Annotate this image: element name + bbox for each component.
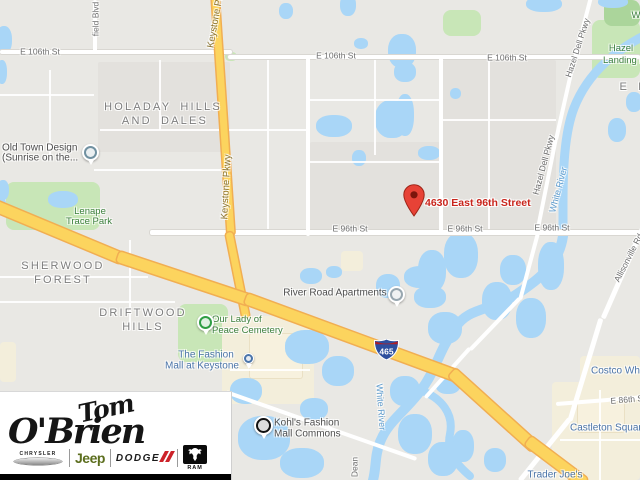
poi-our-lady-line2-label[interactable]: Peace Cemetery xyxy=(212,326,283,336)
minor-road xyxy=(267,57,269,231)
destination-marker-icon[interactable] xyxy=(403,184,425,222)
park-hazel-landing-line1-label: Hazel xyxy=(609,44,633,54)
street-e106-left-label: E 106th St xyxy=(20,47,60,56)
nbhd-el-fragment-label: E L xyxy=(619,81,640,93)
shop-costco-label[interactable]: Costco Wholesale xyxy=(591,366,640,377)
minor-road xyxy=(374,57,376,155)
nbhd-driftwood-line1-label: DRIFTWOOD xyxy=(99,307,187,319)
dealer-logo: Tom O'Brien CHRYSLER Jeep DODGE xyxy=(0,391,232,480)
shop-fashion-mall-line1-label[interactable]: The Fashion xyxy=(178,350,234,361)
ram-wordmark: RAM xyxy=(187,465,203,471)
ram-badge: RAM xyxy=(183,445,207,471)
shop-castleton-square-label[interactable]: Castleton Square xyxy=(570,423,640,434)
poi-old-town-line2-label[interactable]: (Sunrise on the... xyxy=(2,153,78,164)
dodge-text: DODGE xyxy=(116,453,160,464)
street-e106-mid-label: E 106th St xyxy=(316,51,356,60)
fashion-mall-pin-icon[interactable] xyxy=(243,353,254,364)
minor-road xyxy=(100,129,308,131)
shop-fashion-mall-line2-label[interactable]: Mall at Keystone xyxy=(165,361,239,372)
jeep-wordmark: Jeep xyxy=(75,450,105,466)
street-westfield-blvd-label: field Blvd xyxy=(91,2,100,37)
brand-divider xyxy=(177,449,178,467)
cemetery-pin-icon[interactable] xyxy=(197,314,214,331)
logo-brand-row: CHRYSLER Jeep DODGE RAM xyxy=(12,445,207,471)
minor-road xyxy=(94,169,230,171)
street-dean-rd-label: Dean xyxy=(350,457,359,477)
destination-address-label[interactable]: 4630 East 96th Street xyxy=(425,197,531,209)
road-vertical xyxy=(306,55,310,236)
minor-road xyxy=(0,94,94,96)
dodge-slashes-icon xyxy=(160,449,172,467)
logo-bottom-bar xyxy=(0,474,231,480)
i465-shield-icon: 465 xyxy=(374,339,399,365)
park-w-fragment-label: W xyxy=(632,11,640,21)
brand-divider xyxy=(69,449,70,467)
poi-our-lady-line1-label[interactable]: Our Lady of xyxy=(212,315,262,325)
ram-head-icon xyxy=(183,445,207,464)
brand-divider xyxy=(110,449,111,467)
minor-road xyxy=(599,390,601,480)
street-e106-right-label: E 106th St xyxy=(487,53,527,62)
chrysler-wing-icon xyxy=(14,458,62,465)
shop-trader-joes-label[interactable]: Trader Joe's xyxy=(528,470,583,480)
nbhd-sherwood-line2-label: FOREST xyxy=(34,274,92,286)
park-hazel-landing-line2-label: Landing Park xyxy=(603,56,640,66)
minor-road xyxy=(560,439,640,441)
nbhd-holaday-line1-label: HOLADAY HILLS xyxy=(104,101,222,113)
minor-road xyxy=(230,369,310,371)
map-canvas[interactable]: 465 E 106th StE 106th StE 106th StE 96th… xyxy=(0,0,640,480)
nbhd-sherwood-line1-label: SHERWOOD xyxy=(21,260,104,272)
poi-kohls-line1-label[interactable]: Kohl's Fashion xyxy=(274,418,339,429)
street-e96-mid-label: E 96th St xyxy=(448,224,483,233)
park-lenape-line2-label: Trace Park xyxy=(66,217,112,227)
poi-kohls-line2-label[interactable]: Mall Commons xyxy=(274,429,341,440)
dodge-wordmark: DODGE xyxy=(116,449,172,467)
nbhd-holaday-line2-label: AND DALES xyxy=(122,115,208,127)
kohls-pin-icon[interactable] xyxy=(254,416,273,435)
chrysler-wordmark: CHRYSLER xyxy=(20,451,57,457)
street-e96-right-label: E 96th St xyxy=(535,223,570,232)
minor-road xyxy=(441,119,556,121)
minor-road xyxy=(0,301,175,303)
water-white-river-bottom-label: White River xyxy=(373,383,386,430)
river-road-apartments-pin-icon[interactable] xyxy=(388,286,405,303)
nbhd-driftwood-line2-label: HILLS xyxy=(122,321,164,333)
old-town-design-pin-icon[interactable] xyxy=(82,144,99,161)
street-e96-left-label: E 96th St xyxy=(333,224,368,233)
chrysler-badge: CHRYSLER xyxy=(12,451,64,465)
poi-river-road-apartments-label[interactable]: River Road Apartments xyxy=(283,288,386,299)
minor-road xyxy=(308,161,441,163)
logo-script: Tom O'Brien xyxy=(0,394,231,452)
i465-shield-number: 465 xyxy=(379,347,393,357)
